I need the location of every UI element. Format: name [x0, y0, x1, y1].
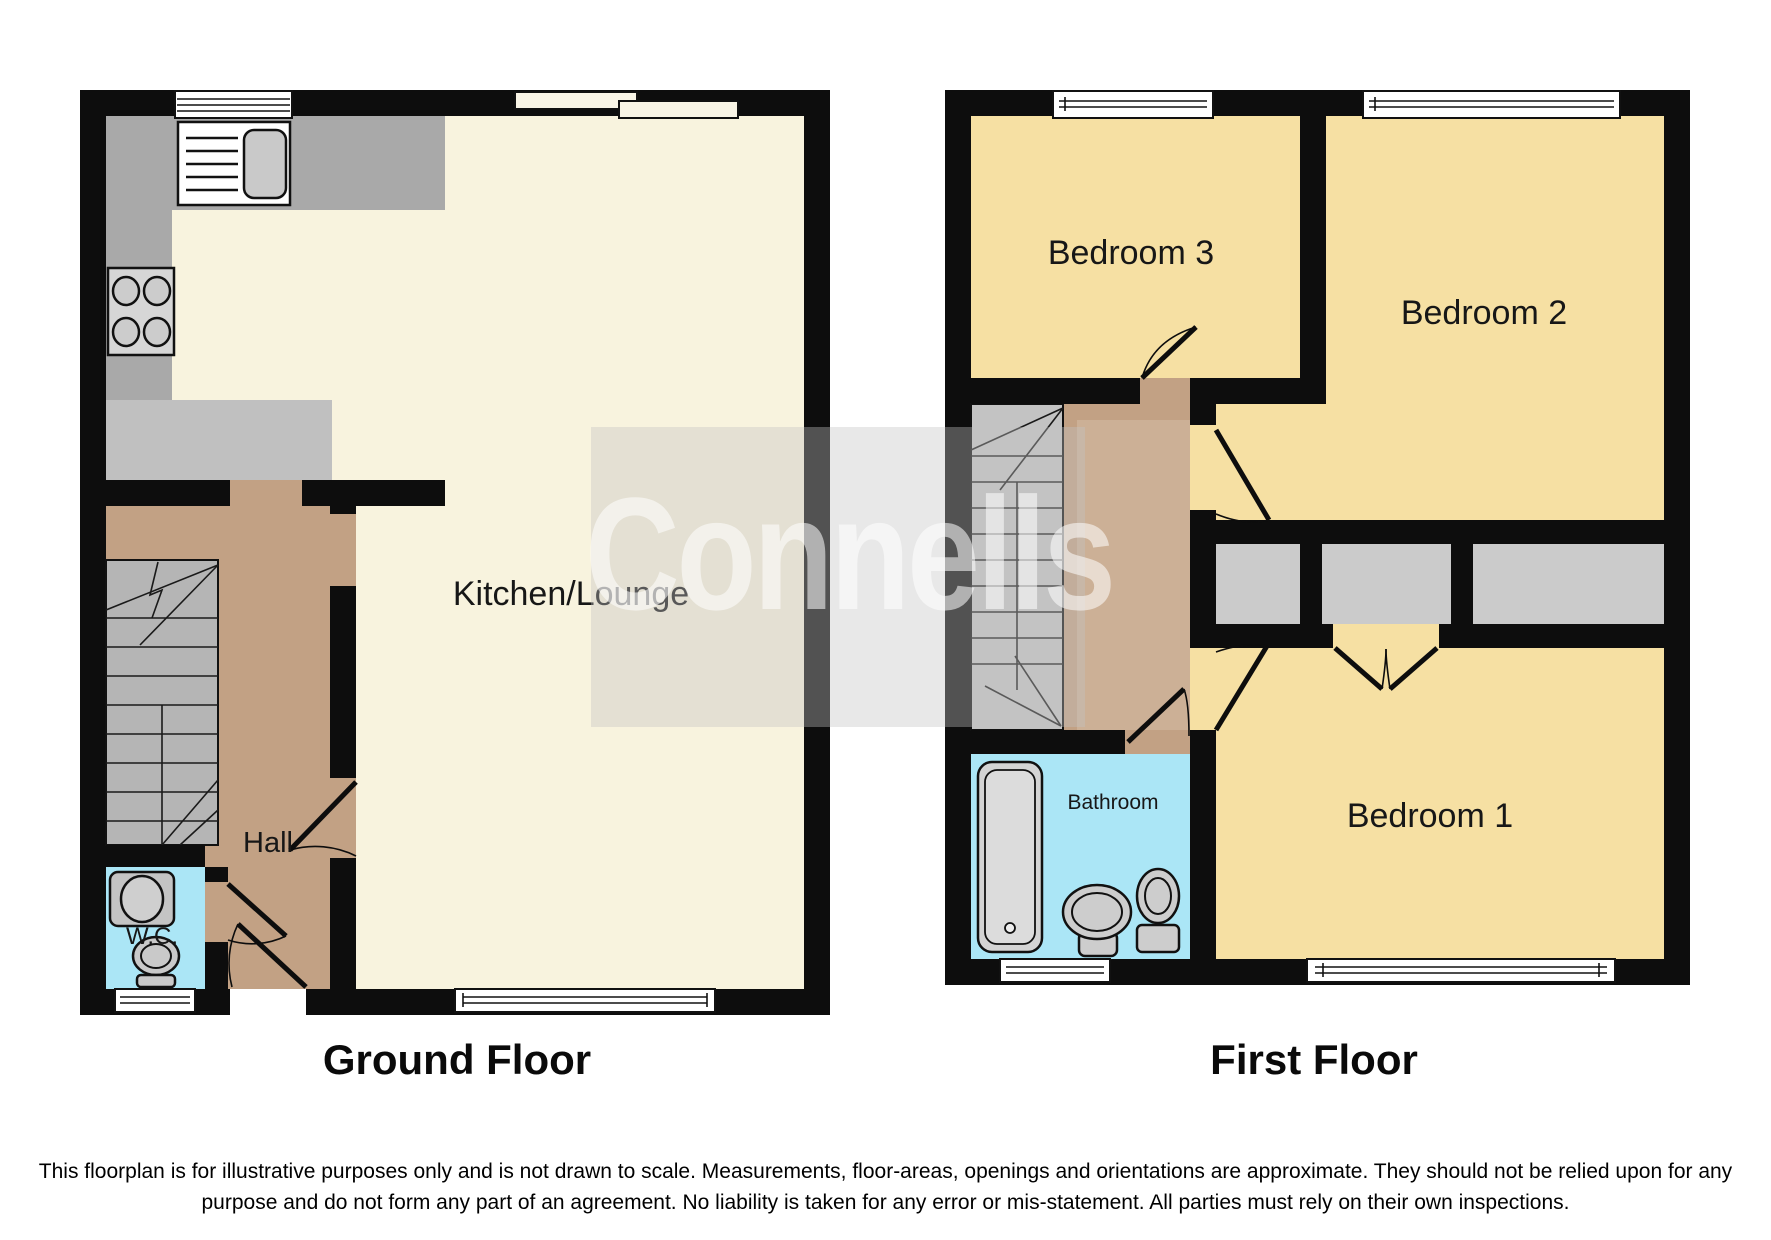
door-opening [330, 778, 356, 858]
door-opening [1333, 624, 1439, 648]
kitchen-window [175, 91, 292, 118]
door-opening [230, 480, 302, 506]
room-label-kitchen-lounge: Kitchen/Lounge [453, 575, 689, 613]
wall [1190, 730, 1216, 754]
floor-title-ground: Ground Floor [323, 1036, 591, 1084]
wall [1451, 544, 1473, 624]
room-label-bedroom3: Bedroom 3 [1048, 234, 1214, 272]
kitchen-counter-left [106, 116, 172, 400]
room-label-bedroom2: Bedroom 2 [1401, 294, 1567, 332]
wall [106, 845, 205, 867]
store-room-floor [106, 400, 332, 480]
bedroom1-window [1307, 959, 1615, 982]
landing-floor-inner [1077, 420, 1190, 738]
wall [1300, 544, 1322, 624]
bath-icon [978, 762, 1042, 952]
lounge-window [455, 989, 715, 1012]
wc-basin-icon [110, 872, 174, 926]
room-label-wc: W.C. [126, 923, 178, 950]
kitchen-sink-icon [178, 122, 290, 205]
wc-window [115, 989, 195, 1012]
hob-icon [108, 268, 174, 355]
floorplan-page: Kitchen/Lounge Hall W.C. [0, 0, 1771, 1240]
room-label-bathroom: Bathroom [1067, 791, 1158, 814]
floor-title-first: First Floor [1210, 1036, 1418, 1084]
bedroom2-window [1363, 91, 1620, 118]
wall [1216, 520, 1664, 544]
room-label-hall: Hall [243, 827, 293, 859]
wall [1190, 378, 1216, 425]
disclaimer-line-1: This floorplan is for illustrative purpo… [0, 1156, 1771, 1187]
door-opening [205, 882, 228, 942]
door-opening [330, 514, 356, 586]
bathroom-toilet-icon [1137, 869, 1179, 952]
first-floor-plan: Bedroom 3 Bedroom 2 Bedroom 1 Bathroom [945, 90, 1690, 985]
stairs-ground [106, 560, 218, 845]
stairs-first [971, 404, 1063, 730]
ground-floor-plan: Kitchen/Lounge Hall W.C. [80, 90, 830, 1015]
disclaimer-text: This floorplan is for illustrative purpo… [0, 1156, 1771, 1218]
bedroom3-window [1053, 91, 1213, 118]
door-opening [1140, 378, 1194, 404]
bathroom-window [1000, 959, 1110, 982]
front-door-opening [230, 989, 306, 1015]
wall [1300, 116, 1326, 378]
wall [1190, 754, 1216, 959]
room-label-bedroom1: Bedroom 1 [1347, 797, 1513, 835]
wardrobe-strip [1216, 544, 1664, 624]
disclaimer-line-2: purpose and do not form any part of an a… [0, 1187, 1771, 1218]
